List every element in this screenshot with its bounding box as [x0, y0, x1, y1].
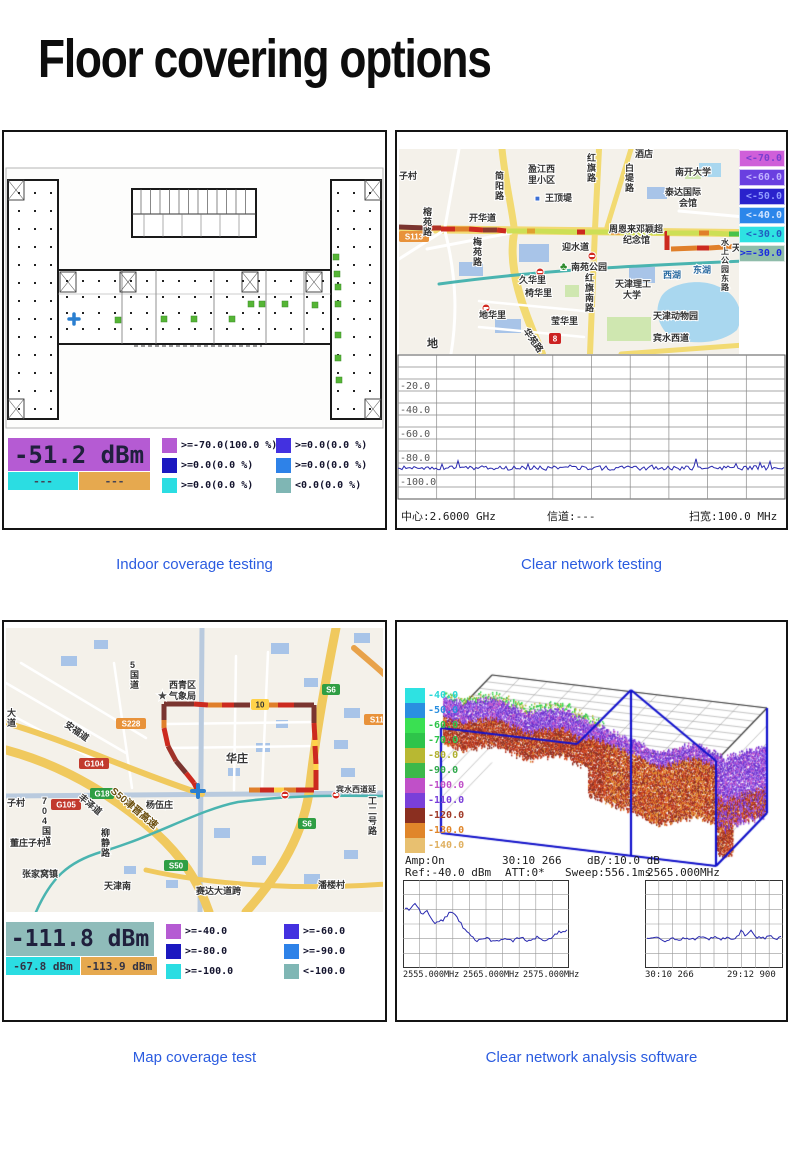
column-dot — [18, 246, 20, 248]
column-dot — [353, 354, 355, 356]
column-dot — [353, 390, 355, 392]
column-dot — [114, 312, 116, 314]
column-dot — [306, 328, 308, 330]
road-badge-label: 10 — [256, 701, 265, 710]
map-label: 地 — [427, 336, 438, 350]
measure-point — [333, 254, 339, 260]
metro-station-icon-bar — [283, 794, 288, 796]
column-dot — [337, 264, 339, 266]
map-label: 椅华里 — [525, 287, 552, 298]
legend-label: >=-100.0 — [185, 966, 233, 977]
map-label: 华庄 — [226, 751, 248, 765]
signal-value-main: -111.8 dBm — [6, 922, 154, 956]
column-dot — [34, 354, 36, 356]
spectrum-span-label: 扫宽:100.0 MHz — [689, 508, 777, 524]
column-dot — [162, 312, 164, 314]
column-dot — [290, 296, 292, 298]
signal-value-sub-left: --- — [8, 472, 78, 490]
map-label: 周恩来邓颖超 — [609, 223, 664, 234]
road-badge-label: G104 — [84, 760, 104, 769]
column-dot — [353, 300, 355, 302]
map-label: 迎水道 — [562, 241, 589, 252]
column-dot — [114, 328, 116, 330]
column-dot — [34, 336, 36, 338]
colorbar-label: -50.0 — [428, 705, 458, 716]
column-dot — [322, 312, 324, 314]
column-dot — [18, 228, 20, 230]
column-dot — [258, 328, 260, 330]
map-label: 地华里 — [479, 309, 506, 320]
column-dot — [369, 354, 371, 356]
scale-legend-item: <-30.0 — [739, 226, 785, 243]
measure-point — [335, 332, 341, 338]
map-label: 潘楼村 — [318, 879, 345, 890]
column-dot — [353, 192, 355, 194]
column-dot — [114, 280, 116, 282]
column-dot — [50, 210, 52, 212]
colorbar-label: -90.0 — [428, 765, 458, 776]
park-area — [565, 285, 579, 297]
column-dot — [162, 296, 164, 298]
map-label: 董庄子村 — [10, 837, 46, 848]
colorbar-label: -40.0 — [428, 690, 458, 701]
road-badge-label: S6 — [326, 686, 336, 695]
legend-item: >=0.0(0.0 %) — [162, 458, 277, 473]
drive-route-segment — [709, 233, 729, 234]
caption-map-coverage: Map coverage test — [2, 1049, 387, 1066]
column-dot — [306, 312, 308, 314]
drive-test-map: S228S113G104G18G105S50S6S6105国道西青区气象局★安福… — [6, 628, 383, 912]
column-dot — [210, 328, 212, 330]
column-dot — [50, 300, 52, 302]
column-dot — [50, 390, 52, 392]
legend-swatch — [284, 964, 299, 979]
column-dot — [18, 354, 20, 356]
map-label: 里小区 — [528, 174, 555, 185]
legend-item: <-100.0 — [284, 964, 345, 979]
map-label: ★ — [158, 691, 167, 702]
signal-value-sub-right: --- — [79, 472, 150, 490]
map-label: 酒店 — [635, 149, 653, 159]
colorbar-swatch — [405, 703, 425, 718]
column-dot — [178, 280, 180, 282]
drive-route-segment — [399, 227, 425, 228]
column-dot — [178, 328, 180, 330]
spectrum-center-label: 中心:2.6000 GHz — [401, 508, 496, 524]
drive-route-segment — [194, 704, 208, 705]
legend-item: >=-100.0 — [166, 964, 233, 979]
map-label: 西青区 — [169, 679, 196, 690]
column-dot — [353, 336, 355, 338]
column-dot — [369, 228, 371, 230]
colorbar-swatch — [405, 748, 425, 763]
column-dot — [194, 312, 196, 314]
building-block — [334, 740, 348, 749]
column-dot — [290, 328, 292, 330]
measure-point — [335, 284, 341, 290]
legend-swatch — [162, 458, 177, 473]
measure-point — [334, 271, 340, 277]
column-dot — [34, 300, 36, 302]
map-label: 东湖 — [693, 264, 711, 275]
legend-label: >=-60.0 — [303, 926, 345, 937]
column-dot — [18, 300, 20, 302]
map-label: 天 — [732, 243, 739, 253]
colorbar-item: -50.0 — [405, 703, 464, 718]
column-dot — [337, 282, 339, 284]
signal-scale-legend: <-70.0<-60.0<-50.0<-40.0<-30.0>=-30.0 — [739, 150, 785, 264]
column-dot — [353, 264, 355, 266]
map-label: 简阳路 — [495, 170, 505, 201]
legend-item: <0.0(0.0 %) — [276, 478, 367, 493]
map-label: 南开大学 — [675, 166, 711, 177]
colorbar-item: -80.0 — [405, 748, 464, 763]
column-dot — [82, 280, 84, 282]
colorbar-swatch — [405, 718, 425, 733]
column-dot — [50, 246, 52, 248]
column-dot — [162, 328, 164, 330]
legend-swatch — [162, 438, 177, 453]
legend-label: >=-90.0 — [303, 946, 345, 957]
column-dot — [322, 280, 324, 282]
column-dot — [18, 210, 20, 212]
column-dot — [146, 296, 148, 298]
measure-point — [259, 301, 265, 307]
building-block — [124, 866, 136, 874]
colorbar-label: -130.0 — [428, 825, 464, 836]
column-dot — [353, 282, 355, 284]
column-dot — [98, 296, 100, 298]
column-dot — [50, 354, 52, 356]
floorplan-image — [4, 142, 385, 434]
column-dot — [50, 318, 52, 320]
colorbar-label: -120.0 — [428, 810, 464, 821]
column-dot — [130, 328, 132, 330]
column-dot — [18, 336, 20, 338]
column-dot — [290, 280, 292, 282]
legend-label: <-100.0 — [303, 966, 345, 977]
map-label: 水上公园东路 — [720, 237, 730, 292]
y-axis-tick: -80.0 — [400, 453, 430, 464]
map-label: 南苑公园 — [571, 261, 607, 272]
metro-station-icon-bar — [334, 794, 339, 796]
column-dot — [369, 246, 371, 248]
column-dot — [337, 192, 339, 194]
road-badge-label: S113 — [405, 233, 424, 242]
attenuation: ATT:0* — [505, 866, 545, 879]
column-dot — [66, 280, 68, 282]
column-dot — [18, 192, 20, 194]
drive-route-segment — [469, 229, 483, 230]
column-dot — [34, 210, 36, 212]
column-dot — [18, 264, 20, 266]
building-block — [647, 187, 667, 199]
measure-point — [248, 301, 254, 307]
column-dot — [369, 192, 371, 194]
map-label: 白堤路 — [625, 162, 635, 193]
column-dot — [66, 296, 68, 298]
colorbar-item: -110.0 — [405, 793, 464, 808]
map-label: ■ — [535, 194, 540, 203]
column-dot — [306, 280, 308, 282]
signal-value-sub-right: -113.9 dBm — [81, 957, 157, 975]
network-testing-panel: S1138酒店红旗路白堤路南开大学泰达国际会馆盈江西里小区简阳路■王顶堤开华道榕… — [395, 130, 788, 530]
column-dot — [98, 328, 100, 330]
column-dot — [66, 328, 68, 330]
drive-route-segment — [535, 231, 577, 232]
legend-label: >=0.0(0.0 %) — [181, 460, 253, 471]
column-dot — [306, 296, 308, 298]
column-dot — [369, 282, 371, 284]
column-dot — [194, 296, 196, 298]
column-dot — [50, 192, 52, 194]
column-dot — [226, 280, 228, 282]
colorbar-item: -120.0 — [405, 808, 464, 823]
column-dot — [242, 312, 244, 314]
metro-station-icon-bar — [538, 271, 543, 273]
map-label: 大道 — [7, 707, 16, 728]
column-dot — [353, 318, 355, 320]
signal-value-main: -51.2 dBm — [8, 438, 150, 471]
measure-point — [335, 355, 341, 361]
colorbar-label: -60.0 — [428, 720, 458, 731]
legend-label: >=-40.0 — [185, 926, 227, 937]
column-dot — [369, 210, 371, 212]
column-dot — [34, 372, 36, 374]
colorbar-label: -100.0 — [428, 780, 464, 791]
map-label: 大学 — [623, 289, 641, 300]
column-dot — [337, 408, 339, 410]
column-dot — [274, 280, 276, 282]
page: Floor covering options -51.2 dBm --- ---… — [0, 0, 790, 1173]
column-dot — [114, 296, 116, 298]
coverage-legend-col1: >=-70.0(100.0 %)>=0.0(0.0 %)>=0.0(0.0 %) — [162, 438, 277, 498]
road-badge-label: S50 — [169, 862, 184, 871]
drive-test-map: S1138酒店红旗路白堤路南开大学泰达国际会馆盈江西里小区简阳路■王顶堤开华道榕… — [399, 149, 739, 354]
column-dot — [98, 280, 100, 282]
legend-item: >=0.0(0.0 %) — [162, 478, 277, 493]
column-dot — [18, 372, 20, 374]
colorbar-swatch — [405, 733, 425, 748]
column-dot — [290, 312, 292, 314]
map-label: 西湖 — [663, 269, 681, 280]
colorbar-swatch — [405, 808, 425, 823]
map-label: 宾水西道 — [653, 332, 689, 343]
legend-swatch — [276, 438, 291, 453]
legend-item: >=-60.0 — [284, 924, 345, 939]
park-area — [607, 317, 651, 341]
caption-indoor-coverage: Indoor coverage testing — [2, 556, 387, 573]
column-dot — [50, 264, 52, 266]
column-dot — [162, 280, 164, 282]
map-label: 子村 — [7, 797, 25, 808]
column-dot — [274, 328, 276, 330]
column-dot — [353, 408, 355, 410]
sweep-time: Sweep:556.1ms — [565, 866, 651, 879]
time-slice-chart — [645, 880, 783, 968]
colorbar-item: -40.0 — [405, 688, 464, 703]
coverage-legend-col1: >=-40.0>=-80.0>=-100.0 — [166, 924, 233, 984]
legend-item: >=-80.0 — [166, 944, 233, 959]
legend-label: >=0.0(0.0 %) — [295, 440, 367, 451]
x-axis-tick: 30:10 266 — [645, 970, 694, 980]
column-dot — [274, 312, 276, 314]
time-axis-ticks: 30:10 26629:12 900 — [397, 970, 786, 984]
column-dot — [369, 408, 371, 410]
y-axis-tick: -60.0 — [400, 429, 430, 440]
ref-level: Ref:-40.0 dBm — [405, 866, 491, 879]
map-label: 红旗南路 — [585, 272, 595, 313]
legend-item: >=-90.0 — [284, 944, 345, 959]
column-dot — [194, 328, 196, 330]
legend-swatch — [166, 924, 181, 939]
waterfall-3d-plot — [427, 650, 782, 875]
column-dot — [337, 228, 339, 230]
column-dot — [146, 328, 148, 330]
column-dot — [369, 390, 371, 392]
building-block — [344, 850, 358, 859]
legend-swatch — [276, 478, 291, 493]
map-label: 盈江西 — [527, 163, 555, 174]
column-dot — [178, 312, 180, 314]
legend-label: >=-80.0 — [185, 946, 227, 957]
colorbar-swatch — [405, 838, 425, 853]
colorbar-label: -70.0 — [428, 735, 458, 746]
road-badge-label: S113 — [370, 716, 383, 725]
y-axis-tick: -100.0 — [400, 477, 436, 488]
y-axis-tick: -20.0 — [400, 381, 430, 392]
column-dot — [146, 312, 148, 314]
legend-item: >=-70.0(100.0 %) — [162, 438, 277, 453]
column-dot — [34, 264, 36, 266]
road — [200, 628, 202, 912]
column-dot — [210, 296, 212, 298]
column-dot — [226, 312, 228, 314]
column-dot — [242, 328, 244, 330]
spectrum-channel-label: 信道:--- — [547, 508, 596, 524]
building-block — [519, 244, 549, 262]
column-dot — [210, 312, 212, 314]
scale-legend-item: <-50.0 — [739, 188, 785, 205]
metro-station-icon-bar — [590, 255, 595, 257]
map-label: 红旗路 — [587, 152, 597, 183]
colorbar-item: -70.0 — [405, 733, 464, 748]
column-dot — [322, 328, 324, 330]
legend-label: >=-70.0(100.0 %) — [181, 440, 277, 451]
column-dot — [82, 296, 84, 298]
page-title: Floor covering options — [38, 28, 491, 90]
building-block — [61, 656, 77, 666]
indoor-coverage-panel: -51.2 dBm --- --- >=-70.0(100.0 %)>=0.0(… — [2, 130, 387, 530]
colorbar-item: -90.0 — [405, 763, 464, 778]
column-dot — [50, 282, 52, 284]
measure-point — [282, 301, 288, 307]
column-dot — [258, 296, 260, 298]
y-axis-tick: -40.0 — [400, 405, 430, 416]
legend-label: >=0.0(0.0 %) — [181, 480, 253, 491]
legend-item: >=0.0(0.0 %) — [276, 438, 367, 453]
signal-value-sub-left: -67.8 dBm — [6, 957, 80, 975]
legend-swatch — [162, 478, 177, 493]
building-block — [271, 643, 289, 654]
colorbar-item: -140.0 — [405, 838, 464, 853]
column-dot — [34, 408, 36, 410]
map-label: 王顶堤 — [545, 193, 573, 203]
map-label: 纪念馆 — [623, 234, 650, 245]
column-dot — [98, 312, 100, 314]
colorbar-label: -80.0 — [428, 750, 458, 761]
column-dot — [353, 246, 355, 248]
map-label: 天津理工 — [615, 278, 651, 289]
marker-frequency: 2565.000MHz — [647, 866, 720, 879]
column-dot — [353, 210, 355, 212]
map-label: 宾水西道延 — [336, 784, 377, 794]
map-label: 开华道 — [469, 212, 496, 223]
column-dot — [258, 312, 260, 314]
column-dot — [50, 228, 52, 230]
column-dot — [369, 264, 371, 266]
legend-item: >=-40.0 — [166, 924, 233, 939]
drive-route-segment — [497, 230, 506, 231]
column-dot — [18, 408, 20, 410]
column-dot — [369, 300, 371, 302]
column-dot — [130, 296, 132, 298]
column-dot — [50, 408, 52, 410]
column-dot — [226, 296, 228, 298]
building-block — [304, 678, 318, 687]
building-block — [214, 828, 230, 838]
building-block — [252, 856, 266, 865]
colorbar-swatch — [405, 823, 425, 838]
measure-point — [161, 316, 167, 322]
column-dot — [50, 336, 52, 338]
scale-legend-item: >=-30.0 — [739, 245, 785, 262]
column-dot — [353, 228, 355, 230]
map-label: 泰达国际 — [664, 186, 701, 197]
map-label: 天津南 — [104, 880, 131, 891]
column-dot — [369, 336, 371, 338]
colorbar-swatch — [405, 688, 425, 703]
column-dot — [274, 296, 276, 298]
column-dot — [34, 282, 36, 284]
legend-item: >=0.0(0.0 %) — [276, 458, 367, 473]
building-block — [94, 640, 108, 649]
colorbar-item: -130.0 — [405, 823, 464, 838]
colorbar-item: -60.0 — [405, 718, 464, 733]
map-label: 子村 — [399, 170, 417, 181]
colorbar-swatch — [405, 763, 425, 778]
scale-legend-item: <-60.0 — [739, 169, 785, 186]
scale-legend-item: <-70.0 — [739, 150, 785, 167]
map-label: 久华里 — [519, 274, 546, 285]
column-dot — [322, 296, 324, 298]
column-dot — [50, 372, 52, 374]
colorbar-swatch — [405, 778, 425, 793]
column-dot — [337, 210, 339, 212]
x-axis-tick: 29:12 900 — [727, 970, 776, 980]
column-dot — [34, 390, 36, 392]
legend-label: >=0.0(0.0 %) — [295, 460, 367, 471]
building-block — [354, 633, 370, 643]
column-dot — [226, 328, 228, 330]
column-dot — [82, 312, 84, 314]
map-coverage-panel: S228S113G104G18G105S50S6S6105国道西青区气象局★安福… — [2, 620, 387, 1022]
legend-swatch — [276, 458, 291, 473]
scale-legend-item: <-40.0 — [739, 207, 785, 224]
column-dot — [337, 246, 339, 248]
metro-station-icon-bar — [484, 307, 489, 309]
measure-point — [115, 317, 121, 323]
